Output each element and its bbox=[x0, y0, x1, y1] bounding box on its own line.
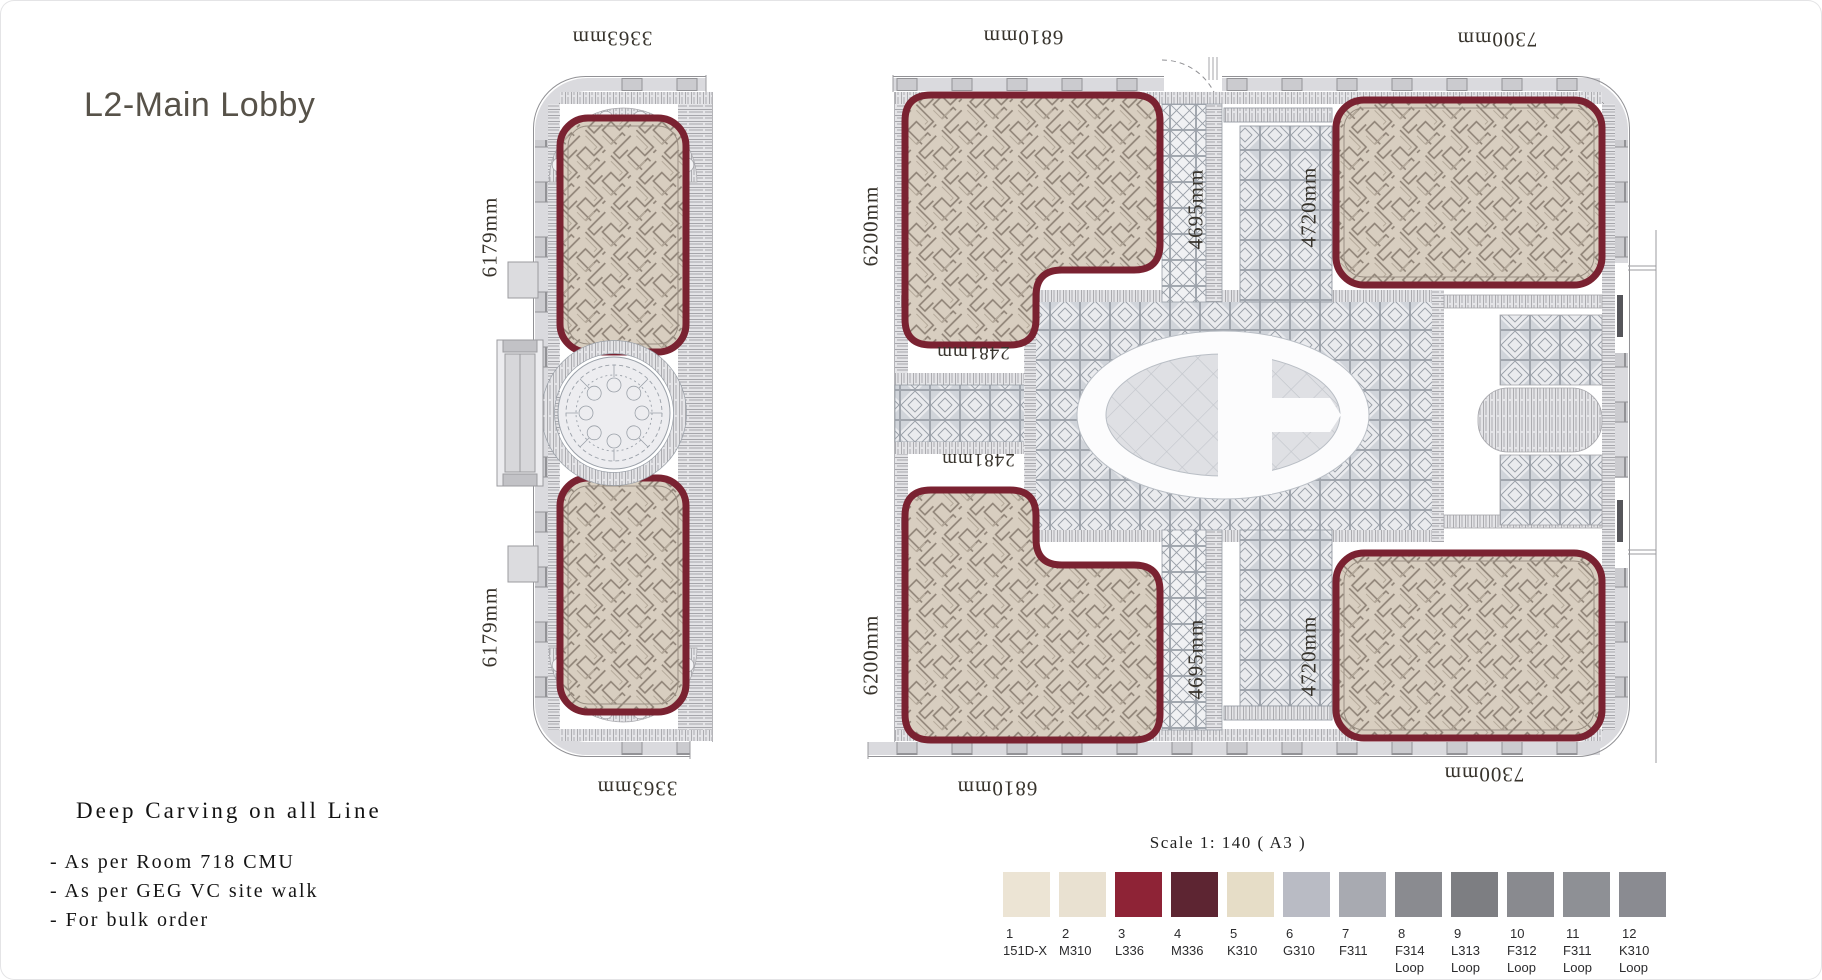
dim-center-upper: 2481mm bbox=[936, 341, 1010, 363]
note-item-3: - For bulk order bbox=[50, 909, 209, 932]
legend-item: 5K310 bbox=[1227, 872, 1274, 975]
legend-swatch bbox=[1451, 872, 1498, 917]
legend-swatch bbox=[1619, 872, 1666, 917]
legend-number: 3 bbox=[1115, 926, 1162, 941]
legend-item: 10F312Loop bbox=[1507, 872, 1554, 975]
legend-code: L336 bbox=[1115, 943, 1162, 958]
legend-code: F312 bbox=[1507, 943, 1554, 958]
legend-number: 12 bbox=[1619, 926, 1666, 941]
legend-item: 3L336 bbox=[1115, 872, 1162, 975]
legend-swatch bbox=[1115, 872, 1162, 917]
dim-left-lower: 6179mm bbox=[478, 587, 503, 668]
dim-grid-upper: 4720mm bbox=[1297, 167, 1322, 248]
floor-plan bbox=[0, 0, 1822, 980]
legend-number: 10 bbox=[1507, 926, 1554, 941]
note-item-2: - As per GEG VC site walk bbox=[50, 880, 319, 903]
legend-swatch bbox=[1227, 872, 1274, 917]
scale-note: Scale 1: 140 ( A3 ) bbox=[1150, 833, 1306, 853]
legend-number: 4 bbox=[1171, 926, 1218, 941]
carpet-left-bottom bbox=[560, 478, 686, 712]
legend-number: 8 bbox=[1395, 926, 1442, 941]
dim-top-left: 3363mm bbox=[572, 26, 653, 51]
dim-top-middle: 6810mm bbox=[983, 25, 1064, 50]
legend-code: F311 bbox=[1563, 943, 1610, 958]
legend-code-sub: Loop bbox=[1507, 960, 1554, 975]
dim-bottom-middle: 6810mm bbox=[957, 776, 1038, 801]
legend-item: 11F311Loop bbox=[1563, 872, 1610, 975]
dim-left-upper: 6179mm bbox=[478, 197, 503, 278]
legend-code: K310 bbox=[1227, 943, 1274, 958]
dim-bottom-right: 7300mm bbox=[1444, 762, 1525, 787]
legend: 1151D-X2M3103L3364M3365K3106G3107F3118F3… bbox=[1003, 872, 1666, 975]
legend-swatch bbox=[1507, 872, 1554, 917]
carpet-right-bottom bbox=[1336, 553, 1602, 738]
dim-strip-upper: 4695mm bbox=[1184, 169, 1209, 250]
legend-swatch bbox=[1339, 872, 1386, 917]
right-middle-zone bbox=[1444, 295, 1602, 528]
dim-strip-lower: 4695mm bbox=[1184, 619, 1209, 700]
medallion bbox=[542, 341, 687, 486]
dim-top-right: 7300mm bbox=[1457, 27, 1538, 52]
legend-swatch bbox=[1395, 872, 1442, 917]
legend-code: K310 bbox=[1619, 943, 1666, 958]
legend-swatch bbox=[1171, 872, 1218, 917]
legend-number: 6 bbox=[1283, 926, 1330, 941]
legend-code: L313 bbox=[1451, 943, 1498, 958]
legend-swatch bbox=[1059, 872, 1106, 917]
legend-number: 11 bbox=[1563, 926, 1610, 941]
legend-item: 4M336 bbox=[1171, 872, 1218, 975]
dim-corridor-lower: 6200mm bbox=[859, 615, 884, 696]
legend-code: M310 bbox=[1059, 943, 1106, 958]
legend-code-sub: Loop bbox=[1619, 960, 1666, 975]
legend-number: 2 bbox=[1059, 926, 1106, 941]
legend-swatch bbox=[1003, 872, 1050, 917]
carpet-right-top bbox=[1336, 100, 1602, 285]
notes-heading: Deep Carving on all Line bbox=[76, 798, 382, 824]
dim-center-lower: 2481mm bbox=[941, 448, 1015, 470]
legend-code: F311 bbox=[1339, 943, 1386, 958]
legend-number: 1 bbox=[1003, 926, 1050, 941]
central-field bbox=[1024, 290, 1444, 542]
legend-item: 12K310Loop bbox=[1619, 872, 1666, 975]
legend-code-sub: Loop bbox=[1395, 960, 1442, 975]
slide-canvas: L2-Main Lobby bbox=[0, 0, 1822, 980]
legend-item: 6G310 bbox=[1283, 872, 1330, 975]
legend-swatch bbox=[1283, 872, 1330, 917]
dim-corridor-upper: 6200mm bbox=[859, 186, 884, 267]
legend-number: 9 bbox=[1451, 926, 1498, 941]
legend-item: 9L313Loop bbox=[1451, 872, 1498, 975]
dim-grid-lower: 4720mm bbox=[1297, 616, 1322, 697]
legend-item: 1151D-X bbox=[1003, 872, 1050, 975]
legend-code: 151D-X bbox=[1003, 943, 1050, 958]
legend-code: M336 bbox=[1171, 943, 1218, 958]
legend-swatch bbox=[1563, 872, 1610, 917]
legend-number: 5 bbox=[1227, 926, 1274, 941]
legend-code: G310 bbox=[1283, 943, 1330, 958]
legend-code-sub: Loop bbox=[1563, 960, 1610, 975]
dim-bottom-left: 3363mm bbox=[597, 776, 678, 801]
legend-code-sub: Loop bbox=[1451, 960, 1498, 975]
carpet-left-top bbox=[560, 118, 686, 352]
legend-item: 2M310 bbox=[1059, 872, 1106, 975]
legend-item: 7F311 bbox=[1339, 872, 1386, 975]
legend-number: 7 bbox=[1339, 926, 1386, 941]
note-item-1: - As per Room 718 CMU bbox=[50, 851, 295, 874]
legend-code: F314 bbox=[1395, 943, 1442, 958]
legend-item: 8F314Loop bbox=[1395, 872, 1442, 975]
